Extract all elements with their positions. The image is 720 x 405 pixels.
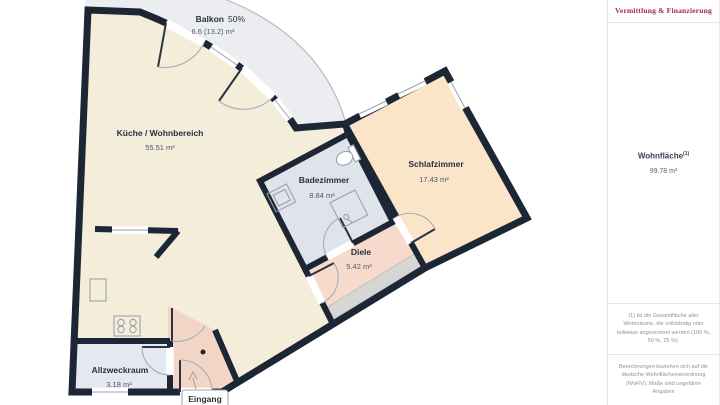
bedroom-label: Schlafzimmer xyxy=(408,159,464,169)
facade-stub-wall xyxy=(345,124,348,134)
living-area-text: Wohnfläche xyxy=(638,152,683,161)
kitchen-area-label: 55.51 m² xyxy=(145,143,175,152)
balcony-area: 6.6 (13.2) m² xyxy=(192,27,235,36)
living-area-footnote-marker: (1) xyxy=(683,151,689,157)
living-area-block: Wohnfläche(1) 99.78 m² xyxy=(608,23,719,303)
floor-plan-page: Balkon 50% 6.6 (13.2) m² Küche / Wohnber… xyxy=(0,0,720,405)
entrance-label: Eingang xyxy=(188,394,222,404)
living-area-value: 99.78 m² xyxy=(650,168,678,175)
brand-tagline: Vermittlung & Finanzierung xyxy=(608,0,719,23)
hallway-area-label: 5.42 m² xyxy=(346,262,372,271)
kitchen-label: Küche / Wohnbereich xyxy=(117,128,204,138)
info-panel: Vermittlung & Finanzierung Wohnfläche(1)… xyxy=(607,0,720,405)
bedroom-area-label: 17.43 m² xyxy=(419,175,449,184)
balcony-label: Balkon xyxy=(196,14,224,24)
bathroom-area-label: 8.84 m² xyxy=(309,191,335,200)
balcony-label-suffix: 50% xyxy=(228,14,245,24)
utility-area-label: 3.18 m² xyxy=(106,380,132,389)
bathroom-label: Badezimmer xyxy=(299,175,350,185)
entry-door-hinge-dot xyxy=(201,350,206,355)
hallway-label: Diele xyxy=(351,247,372,257)
footnote-text: (1) Ist die Gesamtfläche aller Wohnräume… xyxy=(608,303,719,354)
utility-label: Allzweckraum xyxy=(92,365,149,375)
living-area-label: Wohnfläche(1) xyxy=(638,151,689,161)
disclaimer-text: Berechnungen beziehen sich auf die deuts… xyxy=(608,354,719,405)
floor-plan: Balkon 50% 6.6 (13.2) m² Küche / Wohnber… xyxy=(0,0,607,405)
